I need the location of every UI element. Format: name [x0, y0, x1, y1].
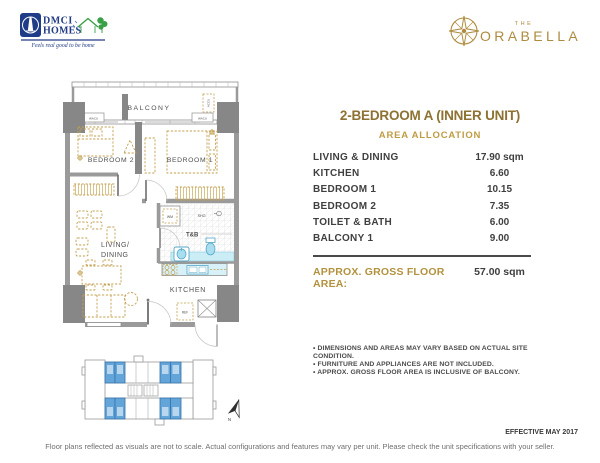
area-allocation-heading: AREA ALLOCATION — [313, 130, 547, 141]
orabella-logo: THE ORABELLA — [440, 8, 592, 50]
gross-area-value: 57.00 sqm — [452, 266, 547, 278]
table-row: KITCHEN 6.60 — [313, 168, 547, 184]
bedroom-partition-wall — [135, 122, 142, 174]
note-line: • DIMENSIONS AND AREAS MAY VARY BASED ON… — [313, 345, 547, 361]
table-row: BEDROOM 1 10.15 — [313, 184, 547, 200]
unit-info-panel: 2-BEDROOM A (INNER UNIT) AREA ALLOCATION… — [313, 108, 547, 376]
dmci-shield-icon — [20, 13, 41, 37]
shower-label: SHO. — [198, 214, 207, 218]
table-row: LIVING & DINING 17.90 sqm — [313, 152, 547, 168]
row-label: BEDROOM 1 — [313, 184, 452, 195]
wacu-right-label: WACU — [198, 116, 207, 120]
accu-label: ACCU — [207, 99, 211, 108]
north-label: N — [228, 417, 231, 422]
building-keyplan: N — [60, 353, 260, 443]
flyer-page: DMCI HOMES Feels real good to be home TH… — [0, 0, 600, 463]
floorplan-drawing: ACCU WACU WACU WM — [50, 70, 260, 355]
row-value: 9.00 — [452, 233, 547, 244]
note-line: • FURNITURE AND APPLIANCES ARE NOT INCLU… — [313, 361, 547, 369]
wacu-left-label: WACU — [89, 116, 98, 120]
north-arrow-icon — [228, 398, 245, 418]
orabella-the: THE — [515, 21, 534, 27]
row-value: 10.15 — [452, 184, 547, 195]
effective-date: EFFECTIVE MAY 2017 — [505, 429, 578, 436]
wardrobe — [145, 138, 155, 173]
sofa-set — [83, 293, 138, 318]
row-label: BALCONY 1 — [313, 233, 452, 244]
area-table: LIVING & DINING 17.90 sqm KITCHEN 6.60 B… — [313, 152, 547, 249]
note-line: • APPROX. GROSS FLOOR AREA IS INCLUSIVE … — [313, 369, 547, 377]
dmci-tagline: Feels real good to be home — [30, 43, 94, 49]
kitchen-label: KITCHEN — [170, 287, 206, 294]
dining-chairs — [76, 211, 115, 256]
dining-table-set — [82, 260, 121, 290]
dmci-wordmark-line2: HOMES — [43, 26, 81, 37]
compass-icon — [449, 16, 479, 46]
bedroom1-label: BEDROOM 1 — [167, 157, 213, 164]
row-label: KITCHEN — [313, 168, 452, 179]
table-row: TOILET & BATH 6.00 — [313, 217, 547, 233]
bedroom2-corner-table — [124, 140, 136, 153]
balcony-label: BALCONY — [128, 105, 171, 112]
living-label-line2: DINING — [101, 252, 129, 259]
dmci-homes-logo: DMCI HOMES Feels real good to be home — [20, 12, 110, 52]
unit-title: 2-BEDROOM A (INNER UNIT) — [313, 108, 547, 123]
row-value: 17.90 sqm — [452, 152, 547, 163]
footer-disclaimer: Floor plans reflected as visuals are not… — [0, 442, 600, 451]
toilet-bath-label: T&B — [186, 233, 199, 239]
bedroom2-dresser — [74, 184, 114, 195]
kitchen-counter — [162, 264, 227, 276]
bedroom1-dresser — [176, 187, 224, 200]
table-row: BALCONY 1 9.00 — [313, 233, 547, 249]
row-label: BEDROOM 2 — [313, 201, 452, 212]
bedroom2-label: BEDROOM 2 — [88, 157, 134, 164]
wm-label: WM — [167, 215, 173, 219]
row-value: 7.35 — [452, 201, 547, 212]
gross-floor-area-row: APPROX. GROSS FLOOR AREA: 57.00 sqm — [313, 266, 547, 290]
table-row: BEDROOM 2 7.35 — [313, 201, 547, 217]
row-label: TOILET & BATH — [313, 217, 452, 228]
row-value: 6.60 — [452, 168, 547, 179]
notes-list: • DIMENSIONS AND AREAS MAY VARY BASED ON… — [313, 345, 547, 376]
gross-area-label: APPROX. GROSS FLOOR AREA: — [313, 266, 452, 290]
row-label: LIVING & DINING — [313, 152, 452, 163]
core — [128, 385, 158, 396]
living-window — [87, 323, 121, 327]
balcony-railing — [72, 82, 238, 102]
divider-rule — [313, 255, 531, 257]
living-label-line1: LIVING/ — [101, 242, 129, 249]
orabella-name: ORABELLA — [480, 28, 581, 44]
utility-shaft — [198, 300, 216, 317]
row-value: 6.00 — [452, 217, 547, 228]
ref-label: REF — [182, 311, 188, 315]
bedroom1-bed — [167, 131, 217, 173]
